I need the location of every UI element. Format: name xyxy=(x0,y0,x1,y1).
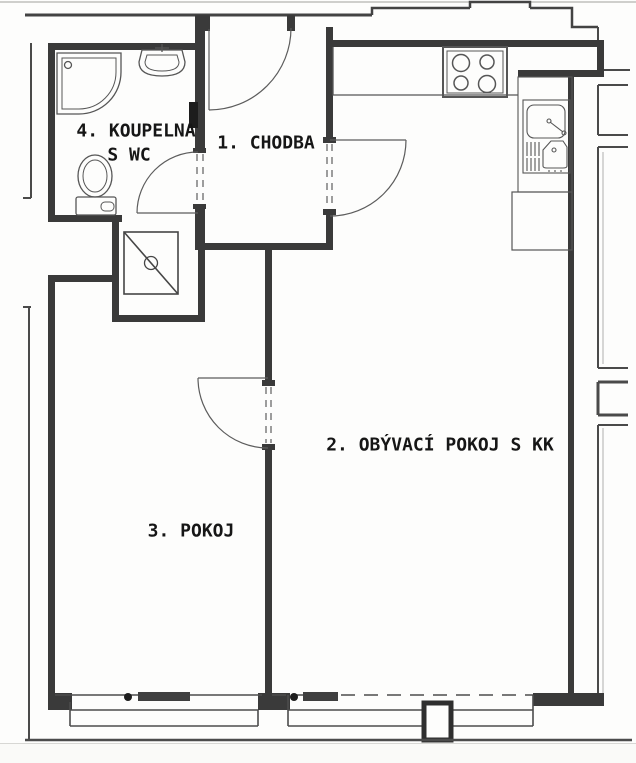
room-label-pokoj: 3. POKOJ xyxy=(148,521,235,542)
neighbour-walls-left xyxy=(23,43,31,740)
radiators xyxy=(124,692,338,701)
kitchen-sink-icon xyxy=(518,77,572,192)
window-room3 xyxy=(70,702,258,726)
shower-icon xyxy=(57,53,121,114)
kitchen-cabinet xyxy=(512,192,572,250)
radiator-valve-room3 xyxy=(124,693,132,701)
wall-bath-hall-a xyxy=(195,15,205,152)
floor-plan-drawing xyxy=(0,0,636,763)
jamb-entrance-left xyxy=(202,15,210,31)
jamb-bath-bottom xyxy=(193,204,206,209)
wall-bath-bottom xyxy=(48,215,122,222)
room-label-koupelna-line1: 4. KOUPELNA xyxy=(76,121,195,142)
floor-plan: 4. KOUPELNA S WC 1. CHODBA 2. OBÝVACÍ PO… xyxy=(0,0,636,763)
wall-niche-left xyxy=(112,222,119,322)
wall-left-upper xyxy=(48,43,55,222)
room3-door xyxy=(198,378,268,448)
wall-room3-top xyxy=(48,275,119,282)
jamb-hall-living-bottom xyxy=(323,209,336,215)
apartment-walls xyxy=(48,15,604,710)
wall-left-lower xyxy=(48,275,55,702)
wall-right-main xyxy=(568,77,574,700)
hallway-living-door xyxy=(330,140,406,216)
wall-partition-b xyxy=(265,450,272,697)
outer-building-lines xyxy=(25,2,598,27)
room-label-chodba: 1. CHODBA xyxy=(217,133,315,154)
stove-icon xyxy=(443,47,507,97)
wall-bottom-right xyxy=(533,693,604,706)
wall-living-top xyxy=(326,40,604,47)
installation-shaft-icon xyxy=(124,232,178,294)
room-label-koupelna-line2: S WC xyxy=(107,145,150,166)
wall-partition-a xyxy=(265,250,272,380)
neighbour-walls-right xyxy=(598,27,630,700)
room-label-obyvaci-pokoj: 2. OBÝVACÍ POKOJ S KK xyxy=(326,435,554,456)
wall-niche-right xyxy=(198,222,205,322)
entrance-door xyxy=(209,28,291,110)
radiator-room2 xyxy=(303,692,338,701)
radiator-valve-room2 xyxy=(290,693,298,701)
door-openings xyxy=(197,144,332,443)
jamb-room3-bottom xyxy=(262,444,275,450)
radiator-room3 xyxy=(138,692,190,701)
window-pillar xyxy=(424,703,451,740)
jamb-room3-top xyxy=(262,380,275,386)
wall-niche-bottom xyxy=(112,315,205,322)
kitchen-counter xyxy=(333,47,518,95)
window-room2-right xyxy=(451,695,533,726)
wall-hall-bottom xyxy=(198,243,333,250)
wall-bath-top xyxy=(48,43,205,50)
scan-bottom-strip xyxy=(0,743,636,763)
wall-kitchen-step xyxy=(518,70,604,77)
